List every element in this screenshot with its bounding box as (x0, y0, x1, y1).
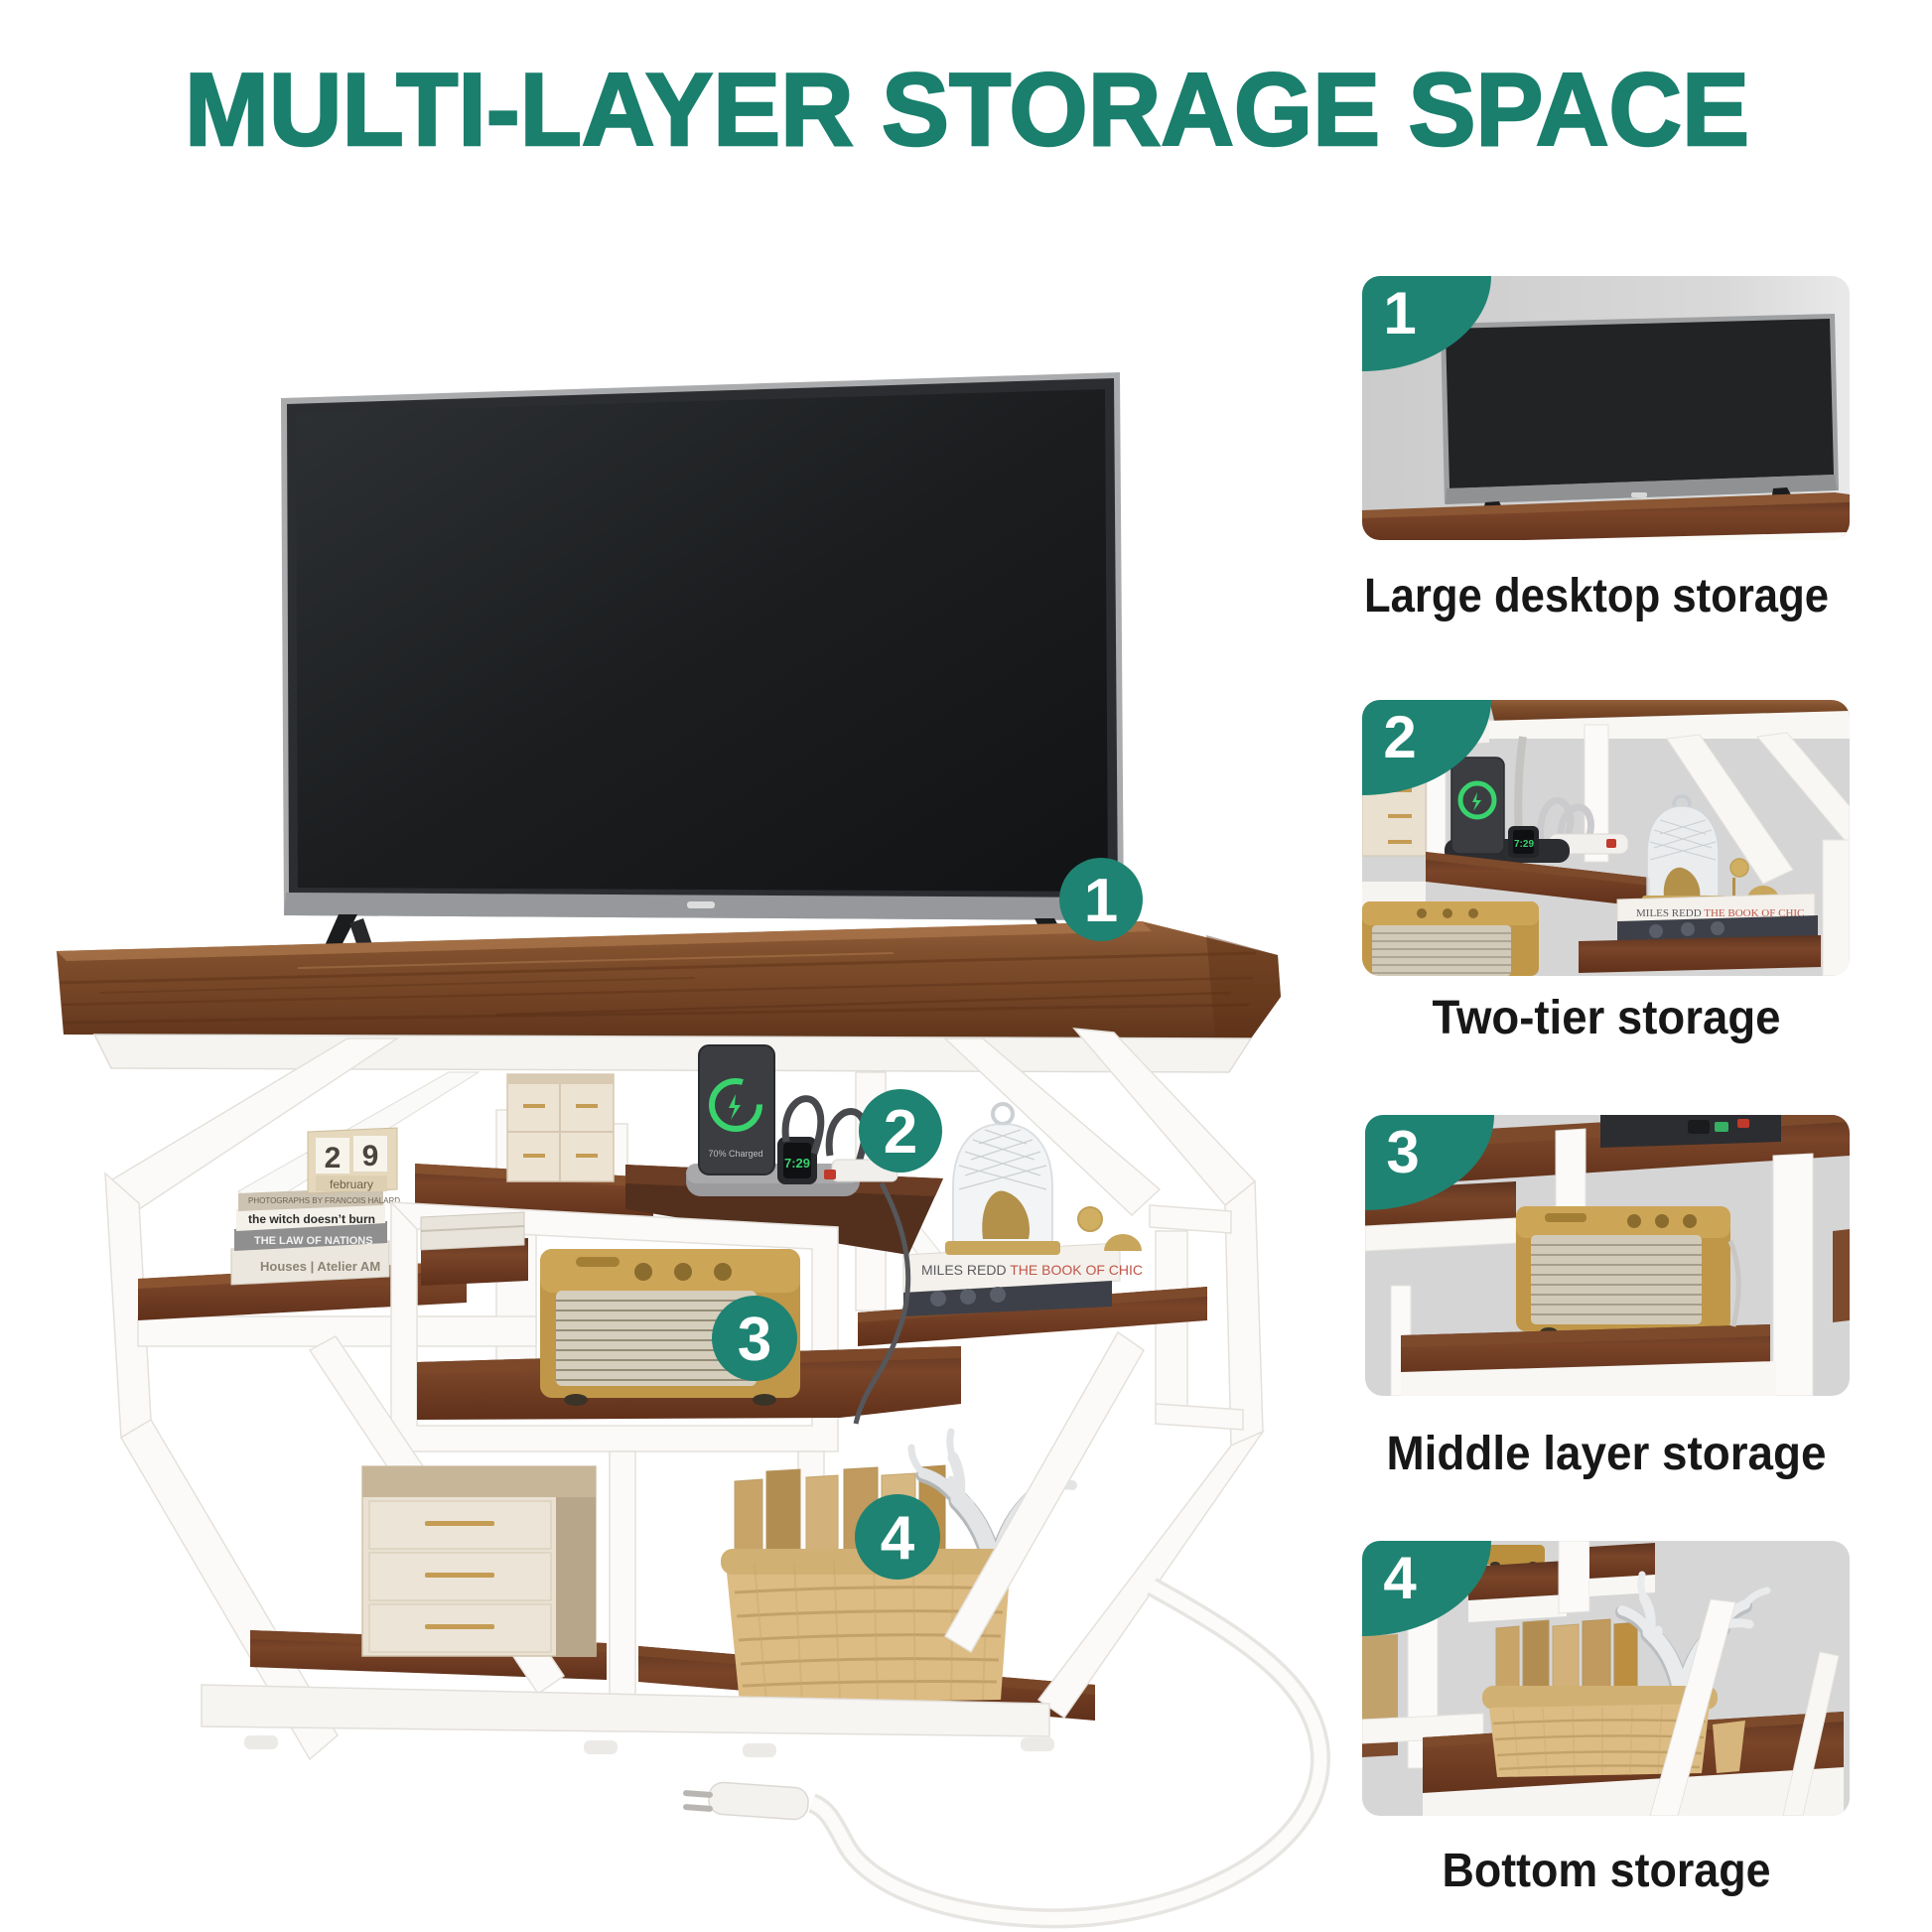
svg-text:7:29: 7:29 (784, 1156, 810, 1171)
svg-text:1: 1 (1084, 867, 1118, 935)
svg-text:february: february (330, 1177, 373, 1191)
svg-text:the witch doesn’t burn: the witch doesn’t burn (248, 1212, 375, 1226)
svg-text:2: 2 (884, 1098, 917, 1167)
svg-text:7:29: 7:29 (1514, 839, 1534, 850)
svg-text:Houses | Atelier AM: Houses | Atelier AM (260, 1259, 380, 1274)
svg-text:Bottom storage: Bottom storage (1443, 1845, 1771, 1897)
svg-text:Middle layer storage: Middle layer storage (1387, 1428, 1827, 1480)
svg-text:2: 2 (325, 1142, 342, 1174)
svg-text:70% Charged: 70% Charged (708, 1149, 762, 1159)
svg-text:3: 3 (1386, 1119, 1419, 1185)
svg-text:3: 3 (738, 1306, 771, 1374)
svg-text:1: 1 (1383, 280, 1416, 346)
svg-text:THE LAW OF NATIONS: THE LAW OF NATIONS (254, 1235, 373, 1247)
svg-text:9: 9 (362, 1140, 379, 1173)
svg-text:Large desktop storage: Large desktop storage (1364, 570, 1829, 622)
svg-text:2: 2 (1383, 704, 1416, 770)
svg-text:PHOTOGRAPHS BY FRANCOIS HALARD: PHOTOGRAPHS BY FRANCOIS HALARD (248, 1196, 400, 1205)
svg-text:Two-tier storage: Two-tier storage (1433, 992, 1781, 1044)
svg-text:4: 4 (1383, 1545, 1417, 1611)
svg-text:4: 4 (881, 1504, 915, 1573)
svg-text:MULTI-LAYER STORAGE SPACE: MULTI-LAYER STORAGE SPACE (185, 53, 1749, 168)
svg-text:MILES REDD THE BOOK OF CHIC: MILES REDD THE BOOK OF CHIC (921, 1262, 1143, 1278)
